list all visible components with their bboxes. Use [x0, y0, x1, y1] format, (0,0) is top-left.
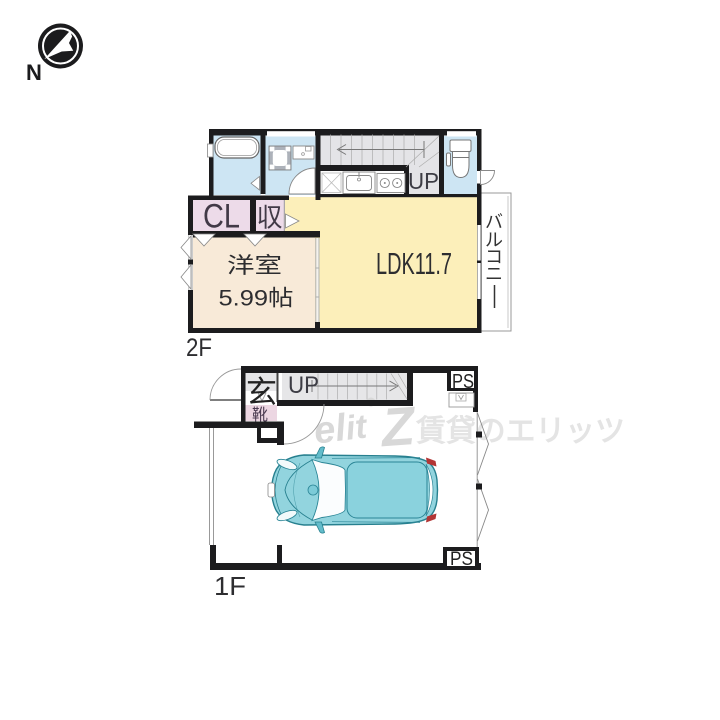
- svg-text:elit: elit: [312, 404, 371, 452]
- svg-text:ニ: ニ: [485, 264, 503, 284]
- svg-text:靴: 靴: [252, 406, 268, 424]
- svg-text:LDK11.7: LDK11.7: [376, 246, 452, 281]
- svg-text:洋室: 洋室: [227, 253, 282, 278]
- svg-text:5.99帖: 5.99帖: [219, 286, 294, 311]
- svg-text:PS: PS: [450, 549, 473, 570]
- svg-text:収: 収: [257, 203, 283, 233]
- svg-text:UP: UP: [408, 168, 439, 194]
- svg-text:PS: PS: [452, 371, 474, 393]
- svg-text:バ: バ: [485, 212, 503, 232]
- svg-text:UP: UP: [288, 372, 319, 399]
- svg-text:N: N: [26, 60, 42, 85]
- svg-text:1F: 1F: [214, 571, 246, 601]
- svg-text:CL: CL: [203, 198, 240, 236]
- svg-text:賃貸のエリッツ: 賃貸のエリッツ: [415, 414, 625, 448]
- svg-text:2F: 2F: [186, 334, 212, 362]
- svg-text:玄: 玄: [246, 375, 277, 410]
